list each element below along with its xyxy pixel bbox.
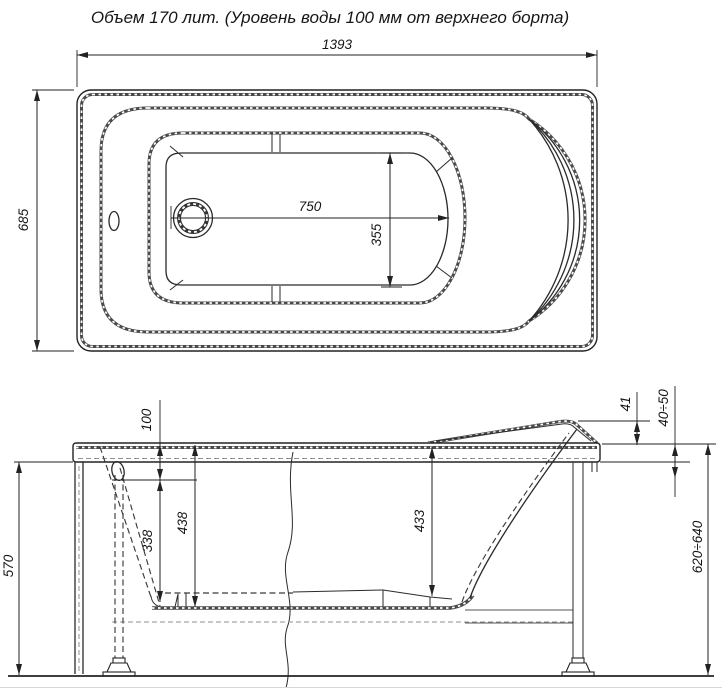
bathtub-technical-drawing: Объем 170 лит. (Уровень воды 100 мм от в… [0, 0, 722, 690]
svg-text:338: 338 [140, 529, 155, 552]
svg-text:355: 355 [369, 223, 384, 246]
dim-rim-range: 40÷50 [600, 386, 690, 497]
break-line [285, 452, 293, 688]
svg-text:1393: 1393 [322, 37, 353, 52]
svg-text:570: 570 [1, 554, 16, 577]
dim-overall-width: 685 [16, 90, 74, 351]
hidden-left-wall-outer [100, 447, 152, 600]
svg-text:750: 750 [299, 199, 322, 214]
dim-height-range: 620÷640 [602, 444, 716, 675]
tub-outer-shell [77, 90, 597, 351]
right-leg [562, 462, 594, 676]
top-view [77, 90, 597, 351]
dim-rim-to-seat-bottom: 433 [412, 447, 432, 596]
drawing-page: Объем 170 лит. (Уровень воды 100 мм от в… [0, 0, 722, 690]
dim-water-to-bottom: 338 [140, 480, 160, 602]
interior-floor [151, 590, 452, 607]
svg-text:685: 685 [16, 208, 31, 231]
drawing-title: Объем 170 лит. (Уровень воды 100 мм от в… [91, 8, 569, 27]
dim-overall-length: 1393 [77, 37, 597, 87]
svg-text:620÷640: 620÷640 [690, 520, 705, 573]
bottom-shell [152, 595, 473, 608]
svg-text:433: 433 [412, 509, 427, 532]
dim-water-level: 100 [112, 400, 197, 480]
svg-text:40÷50: 40÷50 [656, 389, 671, 427]
svg-text:41: 41 [618, 396, 633, 411]
side-view-dimensions: 570 100 338 438 433 41 [1, 386, 716, 675]
headrest-profile [428, 421, 597, 443]
svg-text:100: 100 [139, 408, 154, 431]
side-view [8, 421, 714, 688]
rim-band [73, 443, 600, 472]
dim-rim-to-bottom: 438 [175, 445, 195, 607]
dim-apron-height: 570 [1, 462, 73, 675]
front-apron [75, 462, 83, 674]
svg-text:438: 438 [175, 511, 190, 534]
